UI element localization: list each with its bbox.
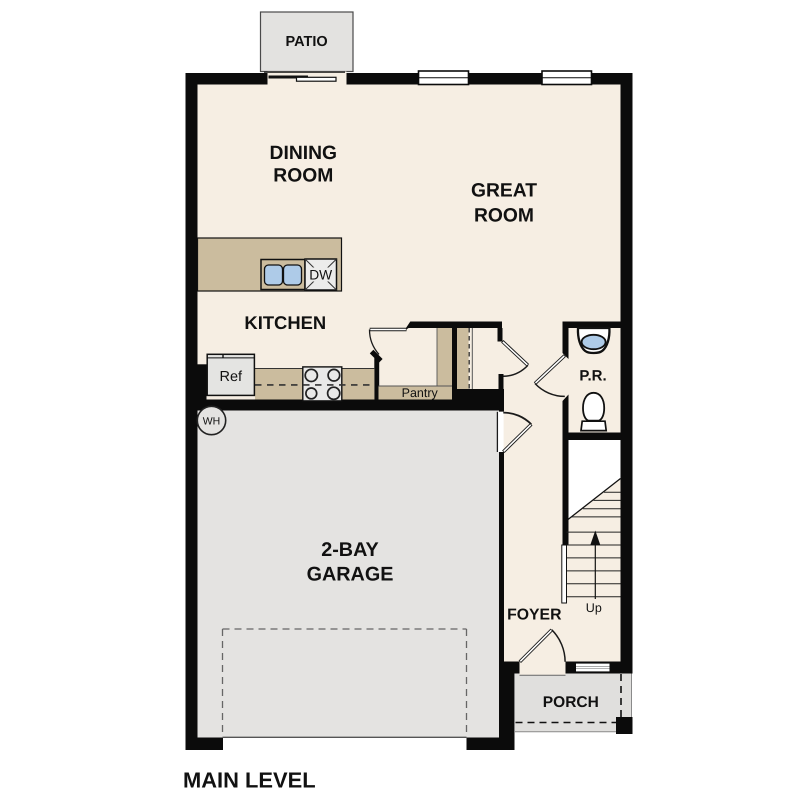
svg-text:2-BAY: 2-BAY [321, 539, 379, 561]
svg-text:GREAT: GREAT [471, 181, 537, 202]
svg-text:Up: Up [586, 601, 602, 615]
svg-text:KITCHEN: KITCHEN [244, 312, 326, 333]
svg-text:FOYER: FOYER [507, 607, 562, 624]
svg-text:PATIO: PATIO [286, 34, 328, 50]
svg-text:ROOM: ROOM [273, 166, 333, 187]
svg-text:MAIN LEVEL: MAIN LEVEL [183, 768, 316, 793]
svg-text:ROOM: ROOM [474, 205, 534, 226]
svg-text:P.R.: P.R. [579, 368, 606, 385]
svg-text:Ref: Ref [220, 369, 244, 385]
svg-text:PORCH: PORCH [543, 694, 599, 711]
svg-text:Pantry: Pantry [402, 386, 439, 400]
svg-text:DW: DW [309, 267, 332, 282]
svg-text:DINING: DINING [270, 143, 337, 164]
svg-text:GARAGE: GARAGE [307, 564, 394, 586]
svg-text:WH: WH [203, 416, 221, 428]
